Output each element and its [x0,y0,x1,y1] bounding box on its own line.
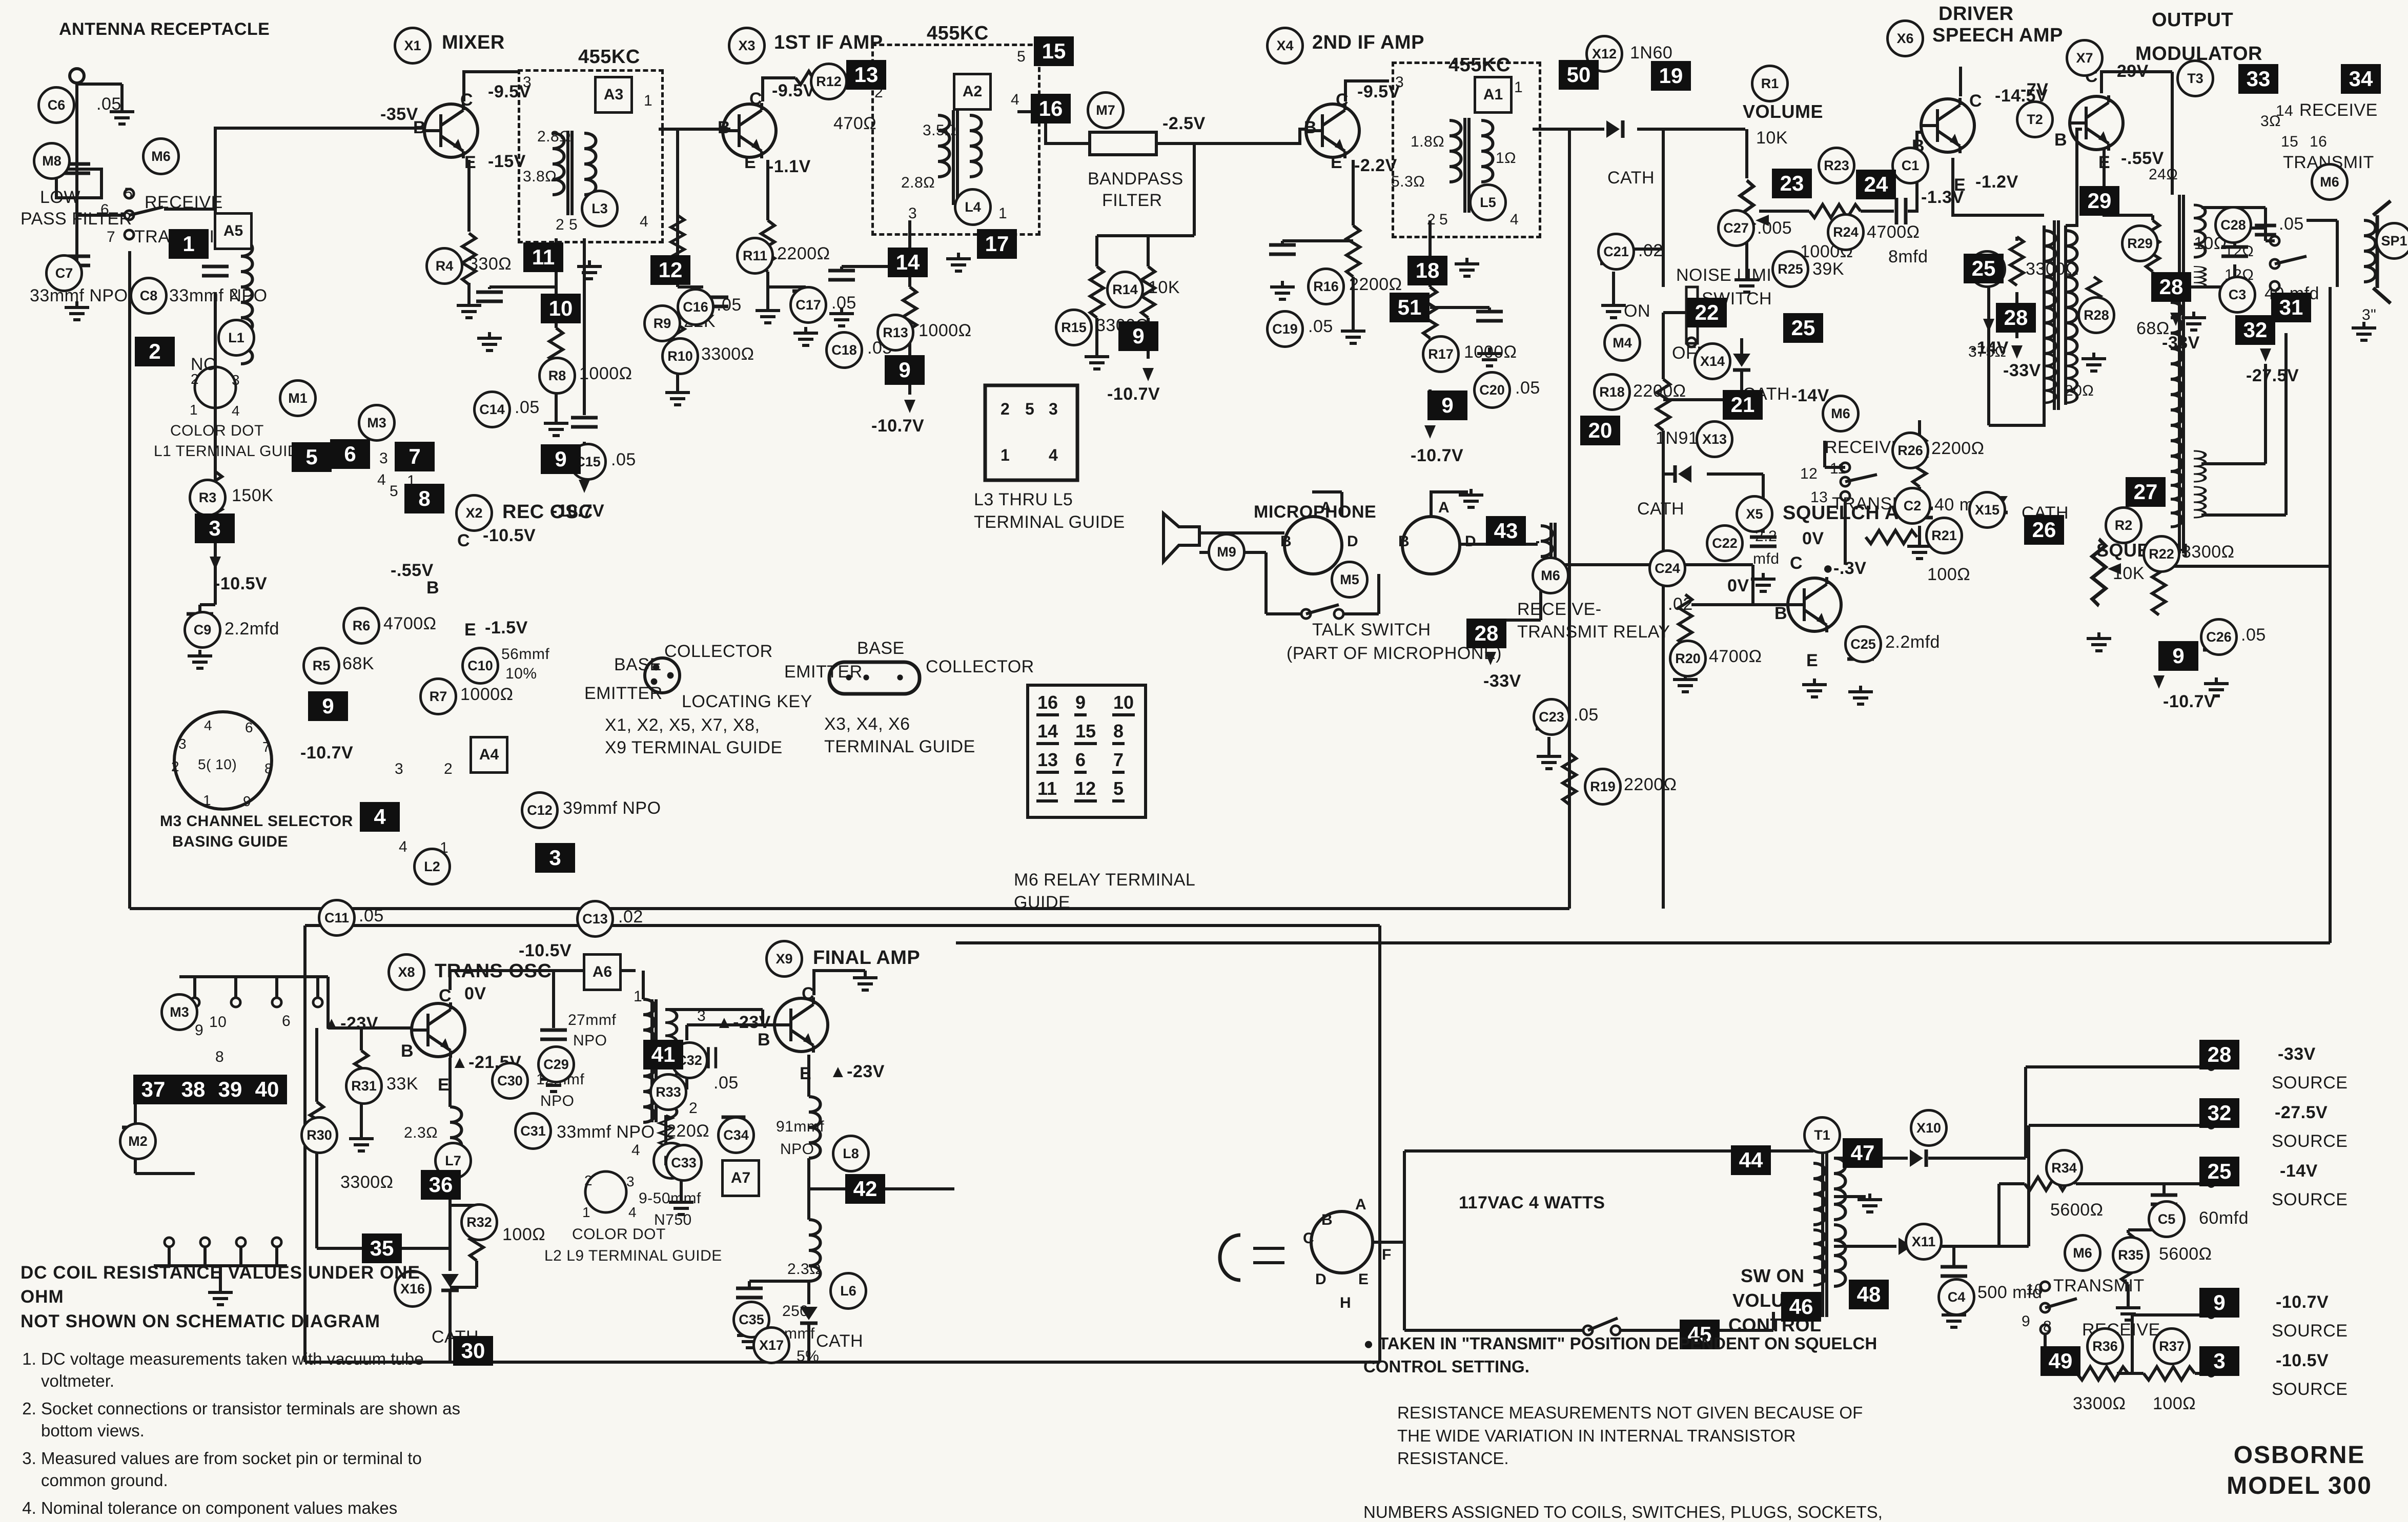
text-label: E [744,154,756,171]
text-label: C [439,987,452,1004]
stage-label: SPEECH AMP [1932,26,2063,45]
part-value-c16: .05 [717,296,742,314]
text-label: 3 [232,373,240,387]
callout-25: 25 [1783,313,1823,343]
text-label: 14 [2276,104,2293,119]
text-label: 5( 10) [198,757,237,772]
callout-31: 31 [2271,293,2311,322]
text-label: -10.5V [214,575,267,592]
part-value-r17: 1000Ω [1464,343,1517,361]
text-label: COLLECTOR [664,643,773,660]
text-label: GUIDE [1014,894,1070,911]
part-ref-r32: R32 [460,1203,498,1241]
part-ref-c20: C20 [1473,371,1511,409]
text-label: E [2098,154,2110,171]
text-label: C [1303,1231,1314,1246]
text-label: -1.5V [485,619,528,636]
text-label: E [464,154,476,171]
part-value-c28: .05 [2279,215,2304,233]
part-value-c11: .05 [359,907,384,924]
note-item-1: DC voltage measurements taken with vacuu… [41,1348,461,1392]
relay-pin-7: 7 [1112,749,1125,774]
text-label: 6 [100,202,109,218]
text-label: 10K [2113,565,2145,582]
text-label: ●-.3V [1823,560,1866,577]
callout-48: 48 [1849,1280,1889,1309]
part-ref-r22: R22 [2142,535,2180,573]
part-ref-r19: R19 [1584,768,1622,806]
callout-28: 28 [2151,272,2191,302]
callout-23: 23 [1772,169,1812,198]
alignment-box-a4: A4 [470,736,508,774]
part-ref-m7: M7 [1087,91,1125,129]
text-label: 3 [626,1175,635,1189]
text-label: 9-50mmf [639,1191,701,1206]
note-items: DC voltage measurements taken with vacuu… [21,1348,461,1522]
text-label: C [457,532,470,549]
text-label: 5 [1025,401,1034,417]
note-title-line1: DC COIL RESISTANCE VALUES UNDER ONE OHM [21,1261,461,1309]
text-label: -10.7V [2163,693,2216,710]
part-ref-r33: R33 [649,1073,687,1111]
text-label: 2 [1001,401,1010,417]
part-ref-r18: R18 [1593,373,1631,411]
part-ref-c29: C29 [537,1045,575,1083]
callout-10: 10 [541,294,581,323]
relay-pin-9: 9 [1074,692,1087,716]
alignment-box-a6: A6 [583,953,622,991]
text-label: B [1321,1212,1333,1228]
text-label: 455KC [578,47,640,67]
text-label: 10% [505,666,537,682]
callout-18: 18 [1407,256,1447,285]
text-label: -33V [2278,1045,2316,1063]
part-ref-c4: C4 [1937,1278,1975,1316]
part-ref-c33: C33 [665,1144,703,1182]
text-label: NPO [573,1033,607,1048]
note-resistance: RESISTANCE MEASUREMENTS NOT GIVEN BECAUS… [1397,1402,1889,1470]
part-ref-c24: C24 [1648,549,1686,587]
text-label: 0V [1727,577,1749,594]
callout-12: 12 [650,255,690,285]
part-ref-r9: R9 [643,304,681,342]
stage-label: MIXER [442,33,505,52]
part-ref-r5: R5 [302,647,340,685]
text-label: B [758,1031,770,1048]
if-can-455kc [1392,61,1541,238]
text-label: B [1304,119,1317,136]
text-label: CATH [1637,500,1684,518]
part-ref-x14: X14 [1693,342,1731,380]
part-value-r8: 1000Ω [579,365,632,382]
part-ref-m2: M2 [119,1122,157,1160]
alignment-box-a7: A7 [721,1159,760,1197]
brand-name: OSBORNE [2227,1440,2372,1471]
text-label: TALK SWITCH [1312,621,1431,639]
part-ref-l8: L8 [832,1135,870,1173]
part-ref-m3: M3 [358,404,396,442]
text-label: 4 [1049,447,1058,463]
part-value-c20: .05 [1515,379,1540,397]
part-value-c19: .05 [1308,318,1333,335]
text-label: 6 [282,1014,291,1029]
text-label: VOLUME [1743,102,1823,121]
part-ref-m6: M6 [1532,557,1569,594]
text-label: X3, X4, X6 [824,715,910,733]
part-value-c5: 60mfd [2199,1209,2249,1227]
text-label: C [802,985,814,1002]
part-ref-x3: X3 [728,27,766,65]
text-label: 2 [444,762,453,777]
text-label: -10.7V [300,744,353,762]
text-label: ANTENNA RECEPTACLE [59,20,270,38]
text-label: 3" [2362,307,2376,323]
part-ref-sp1: SP1 [2375,222,2408,260]
text-label: C [1790,554,1803,572]
part-value-r37: 100Ω [2153,1395,2196,1412]
part-value-r21: 100Ω [1927,566,1970,583]
part-ref-c10: C10 [461,647,499,685]
text-label: TRANSMIT RELAY [1517,623,1670,641]
text-label: LOW [40,189,80,206]
part-value-r32: 100Ω [502,1226,545,1243]
callout-29: 29 [2079,186,2119,216]
text-label: 455KC [927,24,989,43]
part-ref-l3: L3 [581,190,619,228]
part-value-c26: .05 [2241,626,2266,644]
note-numbers: NUMBERS ASSIGNED TO COILS, SWITCHES, PLU… [1363,1501,1907,1522]
text-label: A [1355,1197,1366,1212]
callout-42: 42 [845,1174,885,1204]
text-label: 16 [2310,134,2327,150]
text-label: B [718,119,730,136]
part-value-r31: 33K [386,1075,418,1093]
text-label: 1 [582,1205,590,1220]
part-ref-r29: R29 [2121,224,2159,262]
part-ref-l1: L1 [217,319,255,357]
callout-37: 37 [133,1075,173,1104]
part-ref-c31: C31 [514,1112,552,1150]
stage-label: 2ND IF AMP [1312,33,1424,52]
part-ref-c1: C1 [1891,147,1929,184]
callout-39: 39 [210,1075,250,1104]
text-label: -2.5V [1162,115,1206,132]
text-label: 7 [107,230,115,245]
text-label: -10.5V [2276,1352,2329,1369]
part-ref-r25: R25 [1771,250,1809,288]
part-ref-c16: C16 [677,288,715,326]
part-ref-c12: C12 [521,791,559,829]
callout-1: 1 [169,229,209,259]
text-label: -14V [1791,387,1829,404]
text-label: H [1340,1295,1351,1311]
text-label: 10K [1756,129,1788,147]
part-ref-r12: R12 [810,63,848,100]
text-label: EMITTER [584,685,663,702]
part-value-r18: 2200Ω [1633,382,1686,400]
text-label: COLOR DOT [572,1227,666,1242]
callout-38: 38 [173,1075,213,1104]
text-label: SOURCE [2272,1322,2348,1340]
callout-19: 19 [1651,61,1691,91]
part-ref-m3: M3 [160,993,198,1031]
text-label: -10.7V [1107,385,1160,403]
text-label: D [1315,1272,1327,1287]
part-ref-c9: C9 [183,611,221,649]
relay-pin-14: 14 [1036,721,1059,745]
part-ref-m4: M4 [1603,324,1641,362]
callout-44: 44 [1731,1145,1771,1175]
part-ref-r21: R21 [1925,517,1963,554]
text-label: -1.2V [1975,173,2018,191]
text-label: ON [1624,302,1650,320]
part-value-r12: 470Ω [833,115,876,132]
callout-28: 28 [1466,619,1506,648]
alignment-box-a3: A3 [594,76,633,114]
part-value-r14: 10K [1148,279,1180,296]
text-label: B [2054,131,2067,149]
callout-15: 15 [1034,36,1074,66]
text-label: -2.2V [1354,157,1397,174]
text-label: 15 [2281,134,2298,150]
callout-14: 14 [888,248,928,277]
text-label: B [1774,605,1787,622]
part-ref-t3: T3 [2176,59,2214,97]
text-label: NC [191,356,216,373]
part-value-c31: 33mmf NPO [557,1123,655,1141]
part-ref-c17: C17 [789,286,827,324]
text-label: mfd [1753,551,1780,567]
text-label: 3 [697,1009,706,1024]
part-value-r22: 3300Ω [2181,543,2235,561]
text-label: B [1280,534,1292,549]
text-label: TERMINAL GUIDE [974,513,1125,531]
text-label: 8 [215,1050,224,1065]
text-label: SOURCE [2272,1381,2348,1398]
part-value-r19: 2200Ω [1624,776,1677,793]
callout-49: 49 [2040,1346,2080,1376]
callout-22: 22 [1687,298,1727,327]
callout-3: 3 [2199,1346,2239,1376]
text-label: B [426,579,439,597]
text-label: 24Ω [2149,167,2178,182]
text-label: ▲-23V [716,1014,771,1031]
part-value-r25: 39K [1812,260,1844,278]
text-label: -.55V [2121,150,2164,167]
part-ref-r3: R3 [189,479,227,517]
part-value-c7: 33mmf NPO [30,287,128,304]
text-label: E [1358,1272,1369,1287]
part-ref-t1: T1 [1803,1116,1841,1154]
part-value-c6: .05 [96,95,121,113]
text-label: -7V [2021,81,2048,98]
text-label: BASE [857,640,905,657]
text-label: 4 [631,1143,640,1158]
part-ref-r31: R31 [345,1067,383,1105]
part-value-r13: 1000Ω [919,322,972,339]
text-label: -27.5V [2246,367,2299,384]
part-value-c17: .05 [831,294,856,312]
text-label: A [1438,500,1450,516]
text-label: 250 [782,1304,809,1319]
callout-9: 9 [1427,390,1467,420]
part-value-r30: 3300Ω [340,1174,394,1191]
text-label: 3 [1049,401,1058,417]
part-ref-r30: R30 [300,1116,338,1154]
text-label: BASE [614,656,662,673]
text-label: C [460,91,473,109]
callout-13: 13 [846,60,886,90]
part-ref-c5: C5 [2148,1200,2186,1238]
part-ref-r4: R4 [425,247,463,285]
relay-pin-6: 6 [1074,749,1087,774]
text-label: 0V [464,985,486,1002]
part-value-r28: 68Ω [2136,320,2170,337]
text-label: -33V [2003,362,2041,379]
text-label: C [749,90,762,108]
text-label: RECEIVE [2299,101,2378,119]
part-ref-c27: C27 [1717,209,1755,247]
text-label: F [1382,1247,1392,1263]
text-label: RECEIVE [145,194,223,211]
part-ref-c2: C2 [1893,487,1931,525]
part-ref-r17: R17 [1422,335,1460,373]
part-value-c9: 2.2mfd [225,620,279,637]
text-label: TERMINAL GUIDE [824,738,975,755]
text-label: SW ON [1741,1267,1805,1285]
part-ref-c26: C26 [2200,618,2238,656]
part-ref-c11: C11 [318,899,356,937]
text-label: 11 [1830,461,1846,477]
text-label: -35V [380,106,418,123]
text-label: BANDPASS [1088,170,1183,188]
text-label: L3 THRU L5 [974,491,1073,508]
text-label: ▲-23V [323,1015,378,1032]
part-ref-c3: C3 [2218,276,2256,314]
text-label: CATH [816,1332,863,1350]
alignment-box-a2: A2 [953,73,992,111]
text-label: -9.5V [772,82,815,99]
text-label: -1.1V [768,158,811,175]
part-value-r3: 150K [232,487,273,504]
text-label: 2 [689,1101,698,1116]
text-label: COLLECTOR [926,658,1034,675]
text-label: -10.7V [1411,447,1463,464]
relay-pin-5: 5 [1112,778,1125,803]
callout-25: 25 [2199,1157,2239,1186]
text-label: 2.3Ω [404,1125,438,1141]
part-value-r33: 220Ω [666,1122,709,1140]
text-label: 0V [1802,530,1824,547]
part-value-c13: .02 [618,908,643,925]
part-value-r5: 68K [342,655,374,672]
part-value-r4: 330Ω [468,255,512,273]
callout-9: 9 [885,355,925,385]
alignment-box-a1: A1 [1474,76,1513,114]
part-value-c24: .02 [1668,595,1693,613]
callout-50: 50 [1559,60,1599,90]
callout-11: 11 [523,242,563,272]
callout-21: 21 [1723,390,1763,420]
part-ref-r14: R14 [1106,271,1144,308]
part-ref-c8: C8 [130,277,168,315]
relay-pin-12: 12 [1074,778,1097,803]
text-label: M6 RELAY TERMINAL [1014,871,1195,889]
text-label: TRANSMIT [2053,1277,2145,1294]
text-label: FILTER [1102,192,1162,209]
stage-label: DRIVER [1938,4,2014,24]
part-ref-c25: C25 [1844,625,1882,663]
part-ref-x8: X8 [387,953,425,991]
text-label: SOURCE [2272,1133,2348,1150]
part-ref-c28: C28 [2214,206,2252,244]
part-ref-x5: X5 [1736,495,1773,533]
callout-46: 46 [1781,1292,1821,1322]
text-label: CATH [1607,169,1655,187]
part-value-c23: .05 [1574,706,1599,724]
callout-47: 47 [1843,1138,1883,1168]
text-label: M3 CHANNEL SELECTOR [160,814,353,829]
text-label: 3 [395,762,403,777]
part-value-c12: 39mmf NPO [563,799,661,817]
text-label: PASS FILTER [21,210,132,228]
part-value-r27: 3300Ω [2026,260,2079,278]
part-ref-c34: C34 [717,1116,755,1154]
part-ref-l6: L6 [829,1272,867,1310]
text-label: C [1336,91,1349,109]
callout-24: 24 [1856,170,1896,199]
text-label: 5 [390,484,398,499]
stage-label: FINAL AMP [813,948,920,968]
alignment-box-a5: A5 [214,212,253,250]
text-label: LOCATING KEY [682,693,812,710]
callout-7: 7 [395,442,435,471]
part-value-c27: .005 [1757,219,1792,237]
part-ref-c19: C19 [1266,310,1304,348]
part-value-c32: .05 [713,1074,739,1092]
part-ref-l4: L4 [954,188,992,226]
text-label: -14V [2280,1162,2318,1180]
part-ref-l5: L5 [1469,183,1507,221]
part-value-c25: 2.2mfd [1885,633,1940,651]
callout-20: 20 [1580,416,1620,445]
callout-28: 28 [2199,1040,2239,1069]
text-label: 12 [1800,466,1818,482]
callout-40: 40 [247,1075,287,1104]
part-ref-x10: X10 [1910,1109,1948,1147]
text-label: D [1465,534,1476,549]
text-label: L1 TERMINAL GUIDE [154,444,310,459]
part-ref-m1: M1 [279,379,317,417]
part-ref-r11: R11 [736,237,774,275]
relay-pin-15: 15 [1074,721,1097,745]
callout-32: 32 [2199,1098,2239,1128]
callout-28: 28 [1996,303,2036,333]
part-ref-c6: C6 [37,86,75,124]
text-label: 91mmf [776,1119,824,1135]
part-value-c14: .05 [515,399,540,416]
text-label: 1 [190,403,198,417]
text-label: L2 L9 TERMINAL GUIDE [544,1248,722,1264]
text-label: 12Ω [2225,244,2254,259]
relay-pin-16: 16 [1036,692,1059,716]
text-label: 4 [204,718,212,733]
text-label: -10.5V [483,527,536,544]
part-ref-r23: R23 [1818,147,1855,184]
part-ref-c13: C13 [576,900,614,938]
part-ref-x1: X1 [394,27,432,65]
part-value-r36: 3300Ω [2073,1395,2126,1412]
